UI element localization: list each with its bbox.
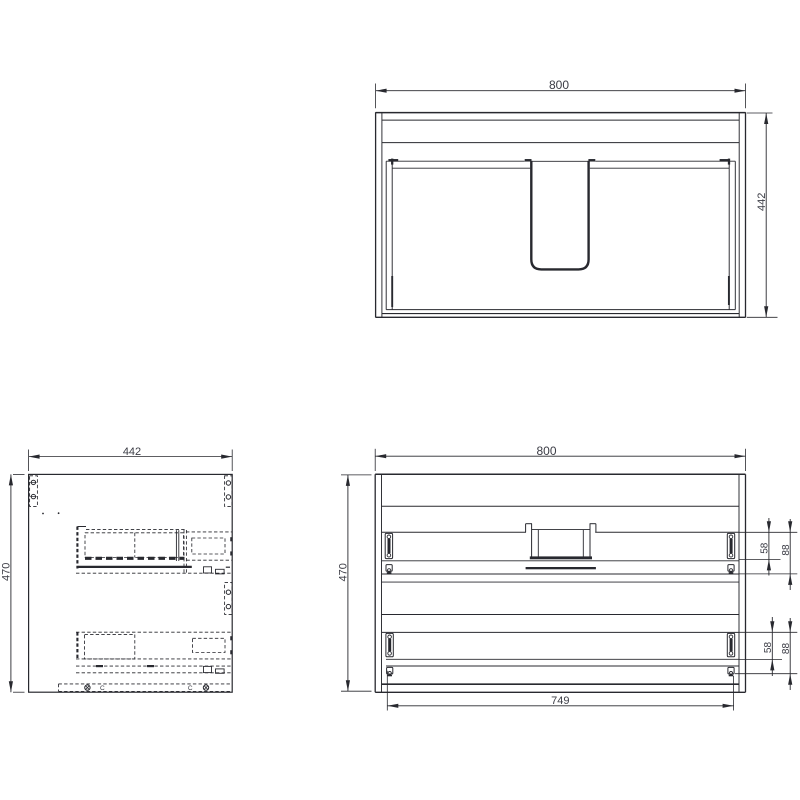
svg-text:442: 442 <box>123 446 141 458</box>
svg-text:470: 470 <box>0 563 12 581</box>
svg-text:800: 800 <box>536 444 556 458</box>
svg-text:58: 58 <box>763 642 774 654</box>
svg-text:88: 88 <box>781 544 792 556</box>
svg-text:C: C <box>188 685 193 692</box>
svg-text:C: C <box>100 685 105 692</box>
svg-text:800: 800 <box>549 78 569 92</box>
svg-text:470: 470 <box>337 563 349 581</box>
svg-text:749: 749 <box>551 695 569 707</box>
svg-text:58: 58 <box>759 542 770 554</box>
svg-text:442: 442 <box>756 193 768 211</box>
svg-text:88: 88 <box>781 643 792 655</box>
